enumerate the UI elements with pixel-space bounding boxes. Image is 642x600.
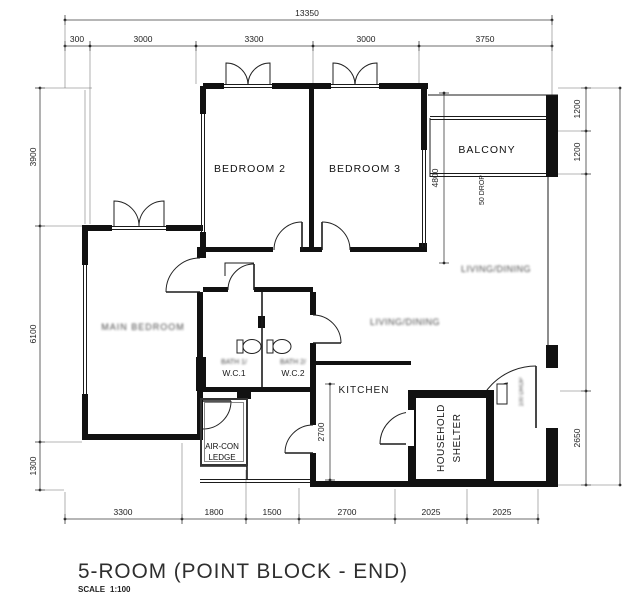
kitchen-door: [285, 425, 313, 453]
room-label-main-bedroom: MAIN BEDROOM: [101, 322, 185, 332]
floor-plan-drawing: 13350 300 3000 3300 3000 3750 3900 6100 …: [0, 0, 642, 600]
dim-bottom-3: 2700: [338, 507, 357, 517]
dim-bottom-4: 2025: [422, 507, 441, 517]
annotation-100-drop: 100 DROP: [519, 377, 525, 406]
room-label-balcony: BALCONY: [458, 144, 515, 156]
wc1-toilet: [237, 340, 261, 354]
bedroom3-door: [322, 222, 350, 250]
dim-right-0: 1200: [572, 99, 582, 118]
dim-right-2: 2650: [572, 428, 582, 447]
room-label-bedroom3: BEDROOM 3: [329, 163, 401, 175]
dim-right-1: 1200: [572, 142, 582, 161]
bedroom2-door: [274, 222, 302, 250]
dim-top-1: 3000: [134, 34, 153, 44]
room-label-living-dining-lower: LIVING/DINING: [370, 317, 440, 327]
dim-left-1: 6100: [28, 324, 38, 343]
room-label-wc2: W.C.2: [281, 368, 304, 378]
aircon-door: [203, 401, 231, 429]
household-shelter-box: [406, 394, 490, 483]
room-label-aircon-1: AIR-CON: [205, 442, 239, 451]
wc1-door: [228, 264, 254, 290]
dim-left-2: 1300: [28, 456, 38, 475]
scale-value: 1:100: [110, 585, 131, 594]
wc2-toilet: [267, 340, 291, 354]
annotation-50-drop: 50 DROP: [479, 175, 486, 205]
dim-bottom-5: 2025: [493, 507, 512, 517]
dim-left-0: 3900: [28, 147, 38, 166]
room-label-aircon-2: LEDGE: [208, 453, 235, 462]
dim-top-2: 3300: [245, 34, 264, 44]
dim-top-4: 3750: [476, 34, 495, 44]
scale-label: SCALE: [78, 585, 106, 594]
room-label-wc1: W.C.1: [222, 368, 245, 378]
room-label-kitchen: KITCHEN: [339, 385, 390, 396]
dim-kitchen-depth: 2700: [316, 422, 326, 441]
room-label-bath1: BATH 1/: [221, 359, 247, 366]
floor-plan-page: 13350 300 3000 3300 3000 3750 3900 6100 …: [0, 0, 642, 600]
room-label-shelter-2: SHELTER: [452, 414, 463, 463]
plan-title: 5-ROOM (POINT BLOCK - END): [78, 560, 408, 583]
dim-bottom-1: 1800: [205, 507, 224, 517]
dim-bottom-2: 1500: [263, 507, 282, 517]
room-label-bedroom2: BEDROOM 2: [214, 163, 286, 175]
room-label-bath2: BATH 2/: [280, 359, 306, 366]
title-block: 5-ROOM (POINT BLOCK - END) SCALE 1:100: [78, 560, 408, 594]
dim-top-total: 13350: [295, 8, 319, 18]
main-bedroom-door: [166, 258, 200, 292]
room-label-living-dining-upper: LIVING/DINING: [461, 264, 531, 274]
room-label-shelter-1: HOUSEHOLD: [436, 404, 447, 472]
dim-bottom-0: 3300: [114, 507, 133, 517]
dim-balcony-depth: 4800: [430, 168, 440, 187]
dimension-lines: [35, 15, 621, 524]
dim-top-0: 300: [70, 34, 84, 44]
dim-top-3: 3000: [357, 34, 376, 44]
wc2-door: [313, 315, 341, 343]
